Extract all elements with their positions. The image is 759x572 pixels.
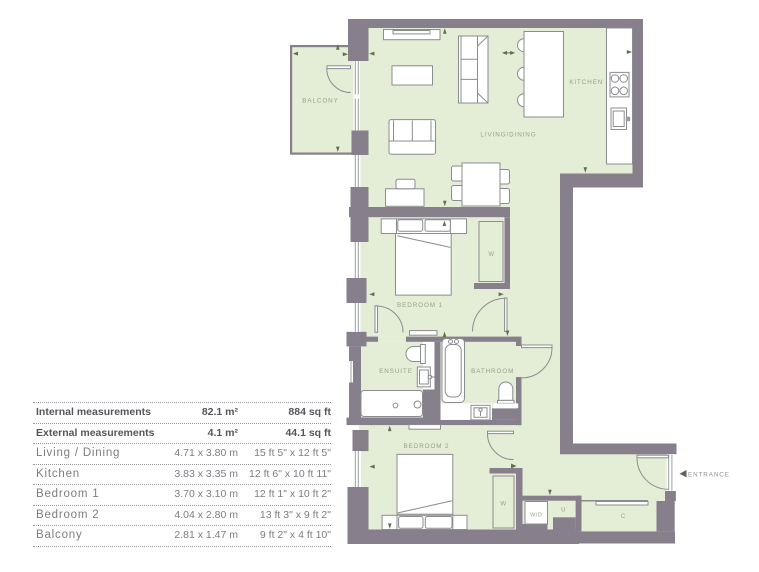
svg-text:KITCHEN: KITCHEN	[569, 79, 603, 86]
svg-text:ENTRANCE: ENTRANCE	[688, 472, 730, 479]
svg-text:W: W	[488, 252, 494, 258]
svg-text:ENSUITE: ENSUITE	[379, 368, 413, 375]
svg-text:W/D: W/D	[530, 513, 542, 519]
svg-text:C: C	[621, 514, 626, 520]
svg-text:BEDROOM 1: BEDROOM 1	[397, 302, 443, 309]
svg-text:W: W	[500, 502, 506, 508]
svg-text:U: U	[561, 508, 566, 514]
svg-text:BALCONY: BALCONY	[302, 98, 338, 105]
svg-text:LIVING/DINING: LIVING/DINING	[480, 132, 536, 139]
svg-text:BEDROOM 2: BEDROOM 2	[404, 443, 450, 450]
svg-text:BATHROOM: BATHROOM	[471, 368, 514, 375]
